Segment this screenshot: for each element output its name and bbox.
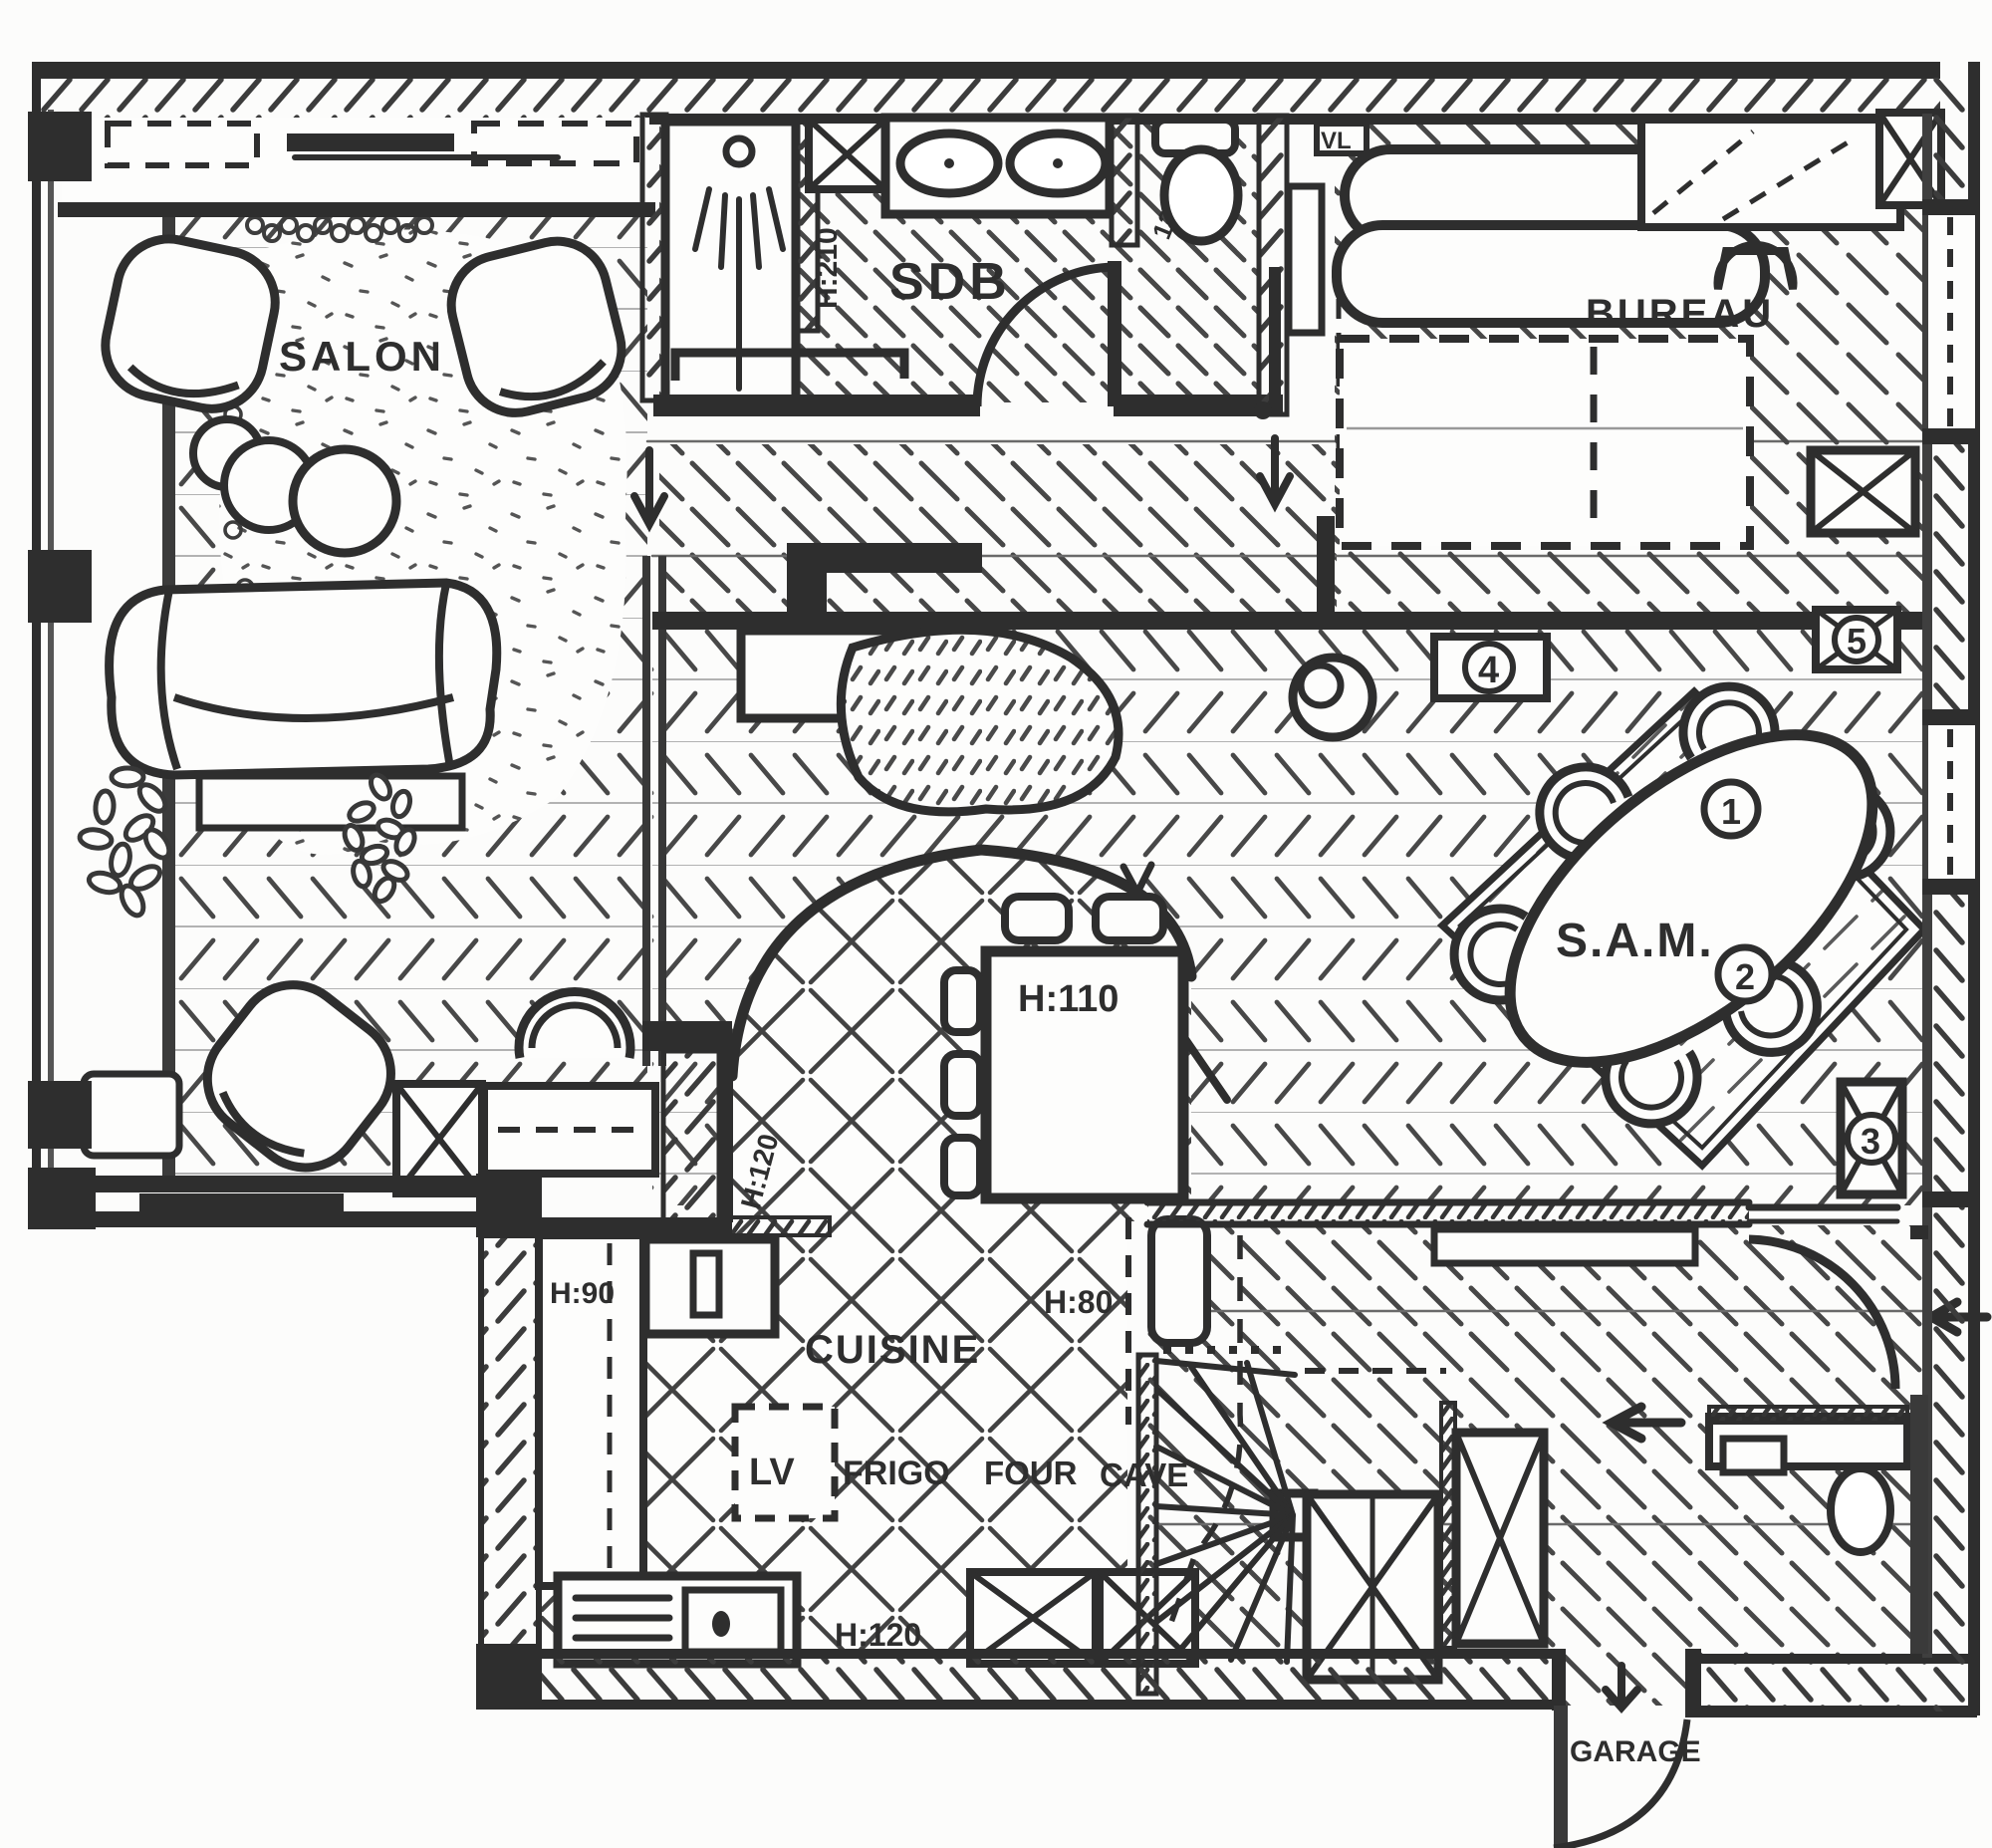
svg-text:LV: LV [749, 1452, 795, 1493]
svg-text:2: 2 [1735, 956, 1755, 997]
svg-text:SDB: SDB [889, 253, 1011, 311]
svg-text:4: 4 [1478, 650, 1499, 691]
svg-text:3: 3 [1861, 1121, 1880, 1162]
svg-text:S.A.M.: S.A.M. [1556, 915, 1714, 967]
svg-text:H:90: H:90 [550, 1277, 615, 1310]
svg-text:H:120: H:120 [835, 1617, 921, 1653]
svg-text:H:80: H:80 [1044, 1284, 1113, 1320]
svg-text:VL: VL [1321, 128, 1352, 154]
svg-text:SALON: SALON [279, 333, 445, 380]
svg-text:H:210: H:210 [811, 227, 844, 309]
svg-text:CUISINE: CUISINE [805, 1328, 980, 1372]
svg-text:5: 5 [1847, 621, 1867, 661]
svg-text:BUREAU: BUREAU [1586, 292, 1774, 336]
svg-text:H:110: H:110 [1018, 978, 1119, 1020]
svg-text:FOUR: FOUR [984, 1454, 1078, 1491]
svg-text:FRIGO: FRIGO [843, 1454, 950, 1492]
svg-text:1: 1 [1721, 791, 1741, 832]
